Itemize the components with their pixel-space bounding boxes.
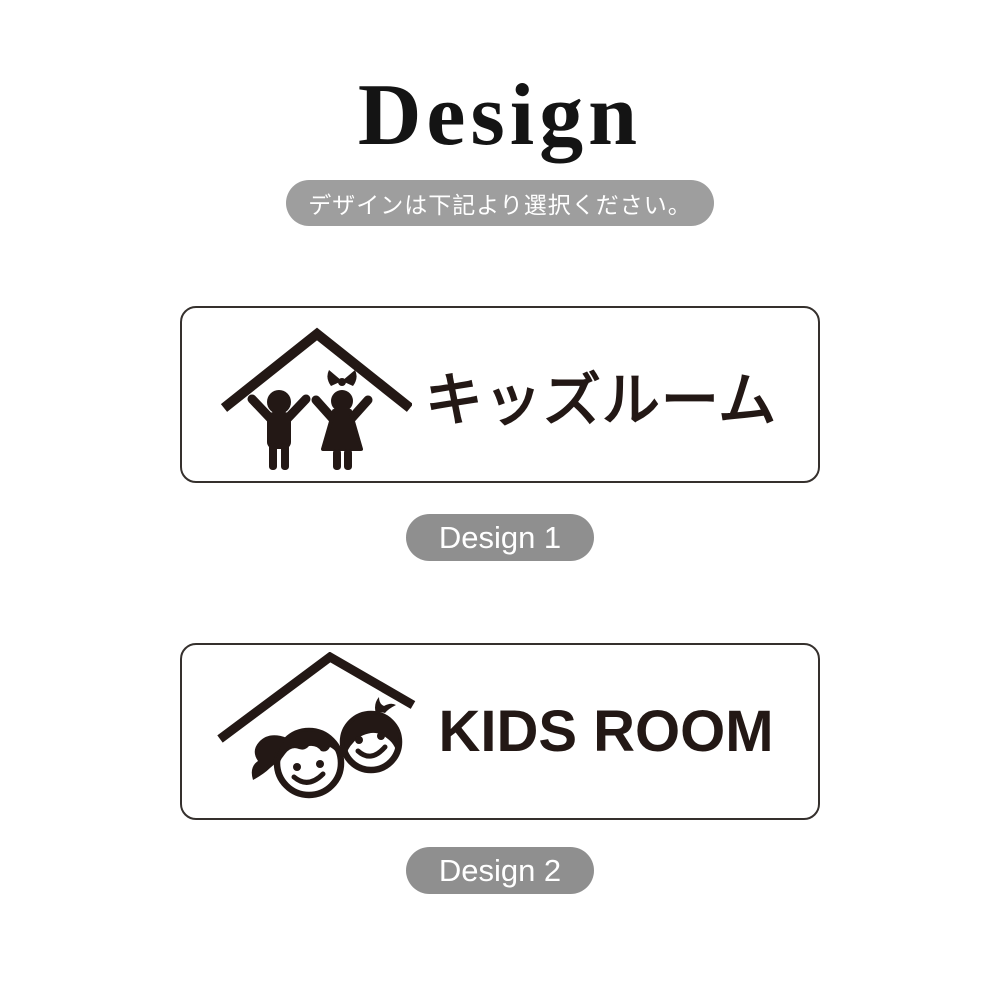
page-title: Design — [358, 72, 642, 160]
design-2-sign-text: KIDS ROOM — [438, 698, 773, 765]
note-badge-text: デザインは下記より選択ください。 — [308, 186, 692, 220]
design-1-sign-card[interactable]: キッズルーム — [180, 306, 820, 483]
design-2-label-pill: Design 2 — [406, 847, 594, 894]
design-selection-page: Design デザインは下記より選択ください。 — [0, 0, 1000, 1000]
design-2-label: Design 2 — [439, 853, 561, 889]
design-option-2: KIDS ROOM Design 2 — [180, 643, 820, 894]
children-under-roof-icon — [212, 325, 412, 475]
design-option-1: キッズルーム Design 1 — [180, 306, 820, 561]
design-2-sign-card[interactable]: KIDS ROOM — [180, 643, 820, 820]
design-2-sign-text-wrap: KIDS ROOM — [422, 698, 798, 765]
design-1-label-pill: Design 1 — [406, 514, 594, 561]
note-badge: デザインは下記より選択ください。 — [286, 180, 714, 226]
design-1-sign-text-wrap: キッズルーム — [412, 353, 798, 437]
kids-faces-under-roof-icon — [212, 652, 422, 818]
design-1-label: Design 1 — [439, 520, 561, 556]
design-1-sign-text: キッズルーム — [425, 353, 777, 437]
